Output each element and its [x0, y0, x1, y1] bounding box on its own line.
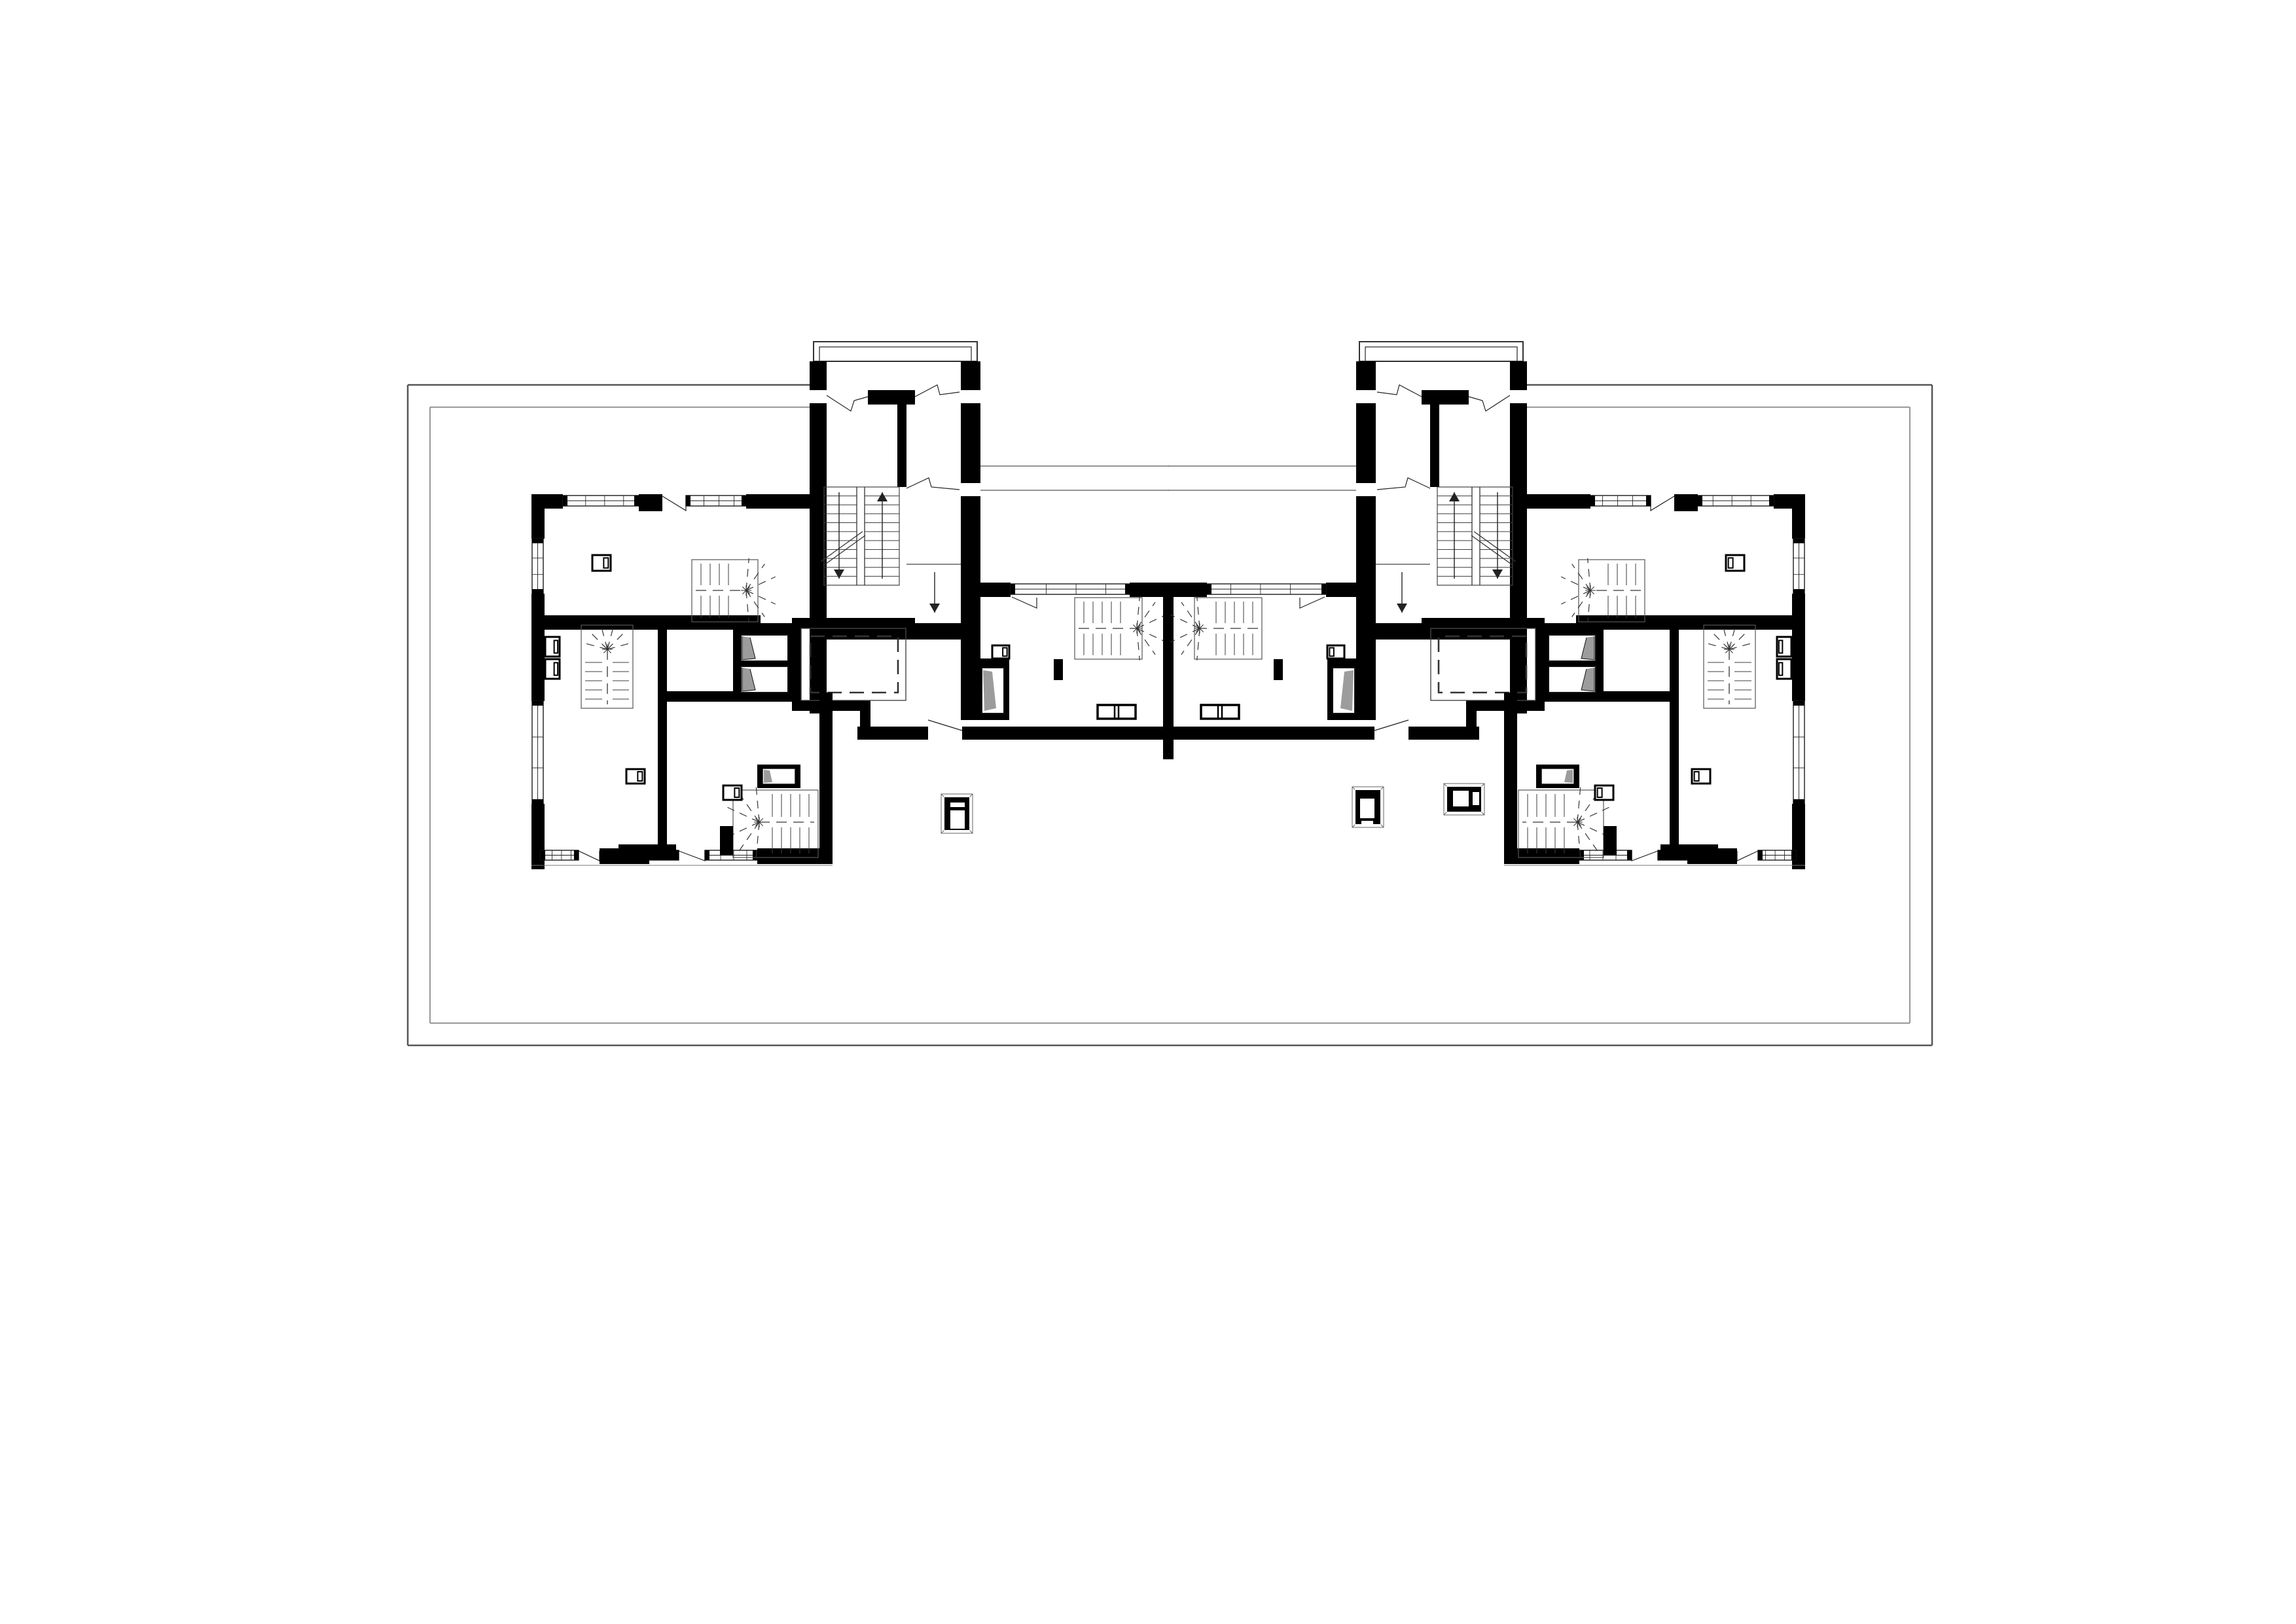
corridor-down-arrow [929, 572, 940, 613]
core-vestibule-stub [1422, 390, 1469, 405]
wing-wall-n-pier [1674, 494, 1698, 511]
door-swing [1632, 851, 1658, 861]
core-straight-stair [1437, 487, 1516, 585]
wing-wall-w-a [1792, 494, 1805, 539]
chimney [1352, 787, 1384, 827]
core-vestibule-stub [868, 390, 915, 405]
core-parapet-inner [819, 347, 971, 361]
unit-wall-s-a [1408, 727, 1479, 740]
wing-wall-sw-corner [1796, 848, 1805, 865]
window-band [541, 850, 579, 860]
core-parapet-inner [1365, 347, 1517, 361]
winder-stair [1075, 596, 1166, 660]
door-leaf [915, 385, 960, 397]
door-swing [1012, 597, 1037, 608]
unit-wall-n-b [1168, 583, 1207, 597]
stair-pier [1054, 659, 1063, 680]
outlet-symbol [592, 555, 611, 571]
door-swing [679, 851, 705, 861]
window-band [1793, 701, 1804, 804]
void-wall-top [1422, 618, 1545, 628]
window-band [1698, 496, 1774, 506]
core-vestibule-wall [897, 405, 906, 487]
kitchen-cabinet [1098, 705, 1136, 719]
window-band [686, 496, 746, 506]
wing-wall-w-b [1792, 594, 1805, 701]
chimney [1444, 784, 1484, 815]
corridor-down-arrow [1397, 572, 1407, 613]
window-band [1793, 539, 1804, 594]
window-band [1011, 584, 1130, 594]
wing-wall-w-b [531, 594, 545, 701]
outlet-symbol [1595, 785, 1613, 800]
door-swing [662, 496, 686, 511]
wall-cabinet [1777, 659, 1791, 679]
unit-wall-n-a [980, 583, 1011, 597]
door-leaf [1377, 478, 1430, 490]
wall-cabinet [1777, 637, 1791, 657]
wall-cabinet [545, 637, 560, 657]
chimney [941, 794, 973, 833]
core-vestibule-wall [1430, 405, 1439, 487]
core-straight-stair [821, 487, 899, 585]
unit-wall-s-b [962, 727, 1168, 740]
outlet-symbol [992, 645, 1009, 659]
core-wall-right-mid [961, 403, 980, 483]
unit-wall-n-a [1326, 583, 1356, 597]
kitchen-cabinet [1201, 705, 1239, 719]
stair-pier [1604, 826, 1617, 856]
unit-wall-s-a [857, 727, 928, 740]
door-leaf [1469, 395, 1510, 411]
unit-entry-door [1374, 720, 1408, 731]
window-band [1207, 584, 1326, 594]
wing-wall-n [746, 494, 812, 509]
window-band [532, 539, 543, 594]
window-band [532, 701, 543, 804]
door-leaf [827, 395, 868, 411]
winder-stair [1561, 558, 1645, 623]
unit-entry-door [928, 720, 962, 731]
door-swing [579, 851, 600, 861]
window-band [563, 496, 639, 506]
door-swing [1651, 496, 1674, 511]
door-leaf [906, 478, 960, 490]
door-swing [1737, 851, 1758, 861]
wing-wall-a [531, 615, 761, 630]
block-wall-e [819, 693, 833, 863]
core-wall-left-upper [1510, 361, 1527, 390]
stair-pier [720, 826, 733, 856]
block-wall-e [1504, 693, 1517, 863]
door-swing [1300, 597, 1325, 608]
door-leaf [1377, 385, 1422, 397]
core-wall-left-upper [810, 361, 827, 390]
stair-pier [1274, 659, 1283, 680]
core-parapet-outer [814, 342, 977, 361]
core-wall-right-upper [1356, 361, 1376, 390]
outlet-symbol [1692, 769, 1710, 784]
wing-wall-a [1576, 615, 1805, 630]
void-wall-top [792, 618, 915, 628]
winder-stair [692, 558, 776, 623]
unit-wall-s-b [1168, 727, 1374, 740]
page [0, 0, 2296, 1624]
wing-wall-b [1670, 630, 1679, 852]
winder-stair [581, 623, 634, 708]
wing-wall-b-pier [619, 844, 676, 860]
outlet-symbol [1726, 555, 1744, 571]
wing-wall-sw-corner [531, 848, 541, 865]
core-parapet-outer [1359, 342, 1523, 361]
core-wall-right-upper [961, 361, 980, 390]
floor-plan-canvas [0, 0, 2296, 1624]
wing-wall-n [1525, 494, 1590, 509]
wing-wall-b-pier [1660, 844, 1718, 860]
winder-stair [1703, 623, 1755, 708]
wing-wall-w-a [531, 494, 545, 539]
window-band [1758, 850, 1796, 860]
wing-wall-b [658, 630, 667, 852]
block-wall-top [664, 691, 735, 702]
wall-cabinet [545, 659, 560, 679]
outlet-symbol [1327, 645, 1344, 659]
core-wall-right-mid [1356, 403, 1376, 483]
wing-wall-n-pier [639, 494, 662, 511]
window-band [1590, 496, 1651, 506]
outlet-symbol [626, 769, 645, 784]
winder-stair [1171, 596, 1262, 660]
outlet-symbol [723, 785, 742, 800]
block-wall-top [1602, 691, 1672, 702]
unit-wall-n-b [1130, 583, 1168, 597]
